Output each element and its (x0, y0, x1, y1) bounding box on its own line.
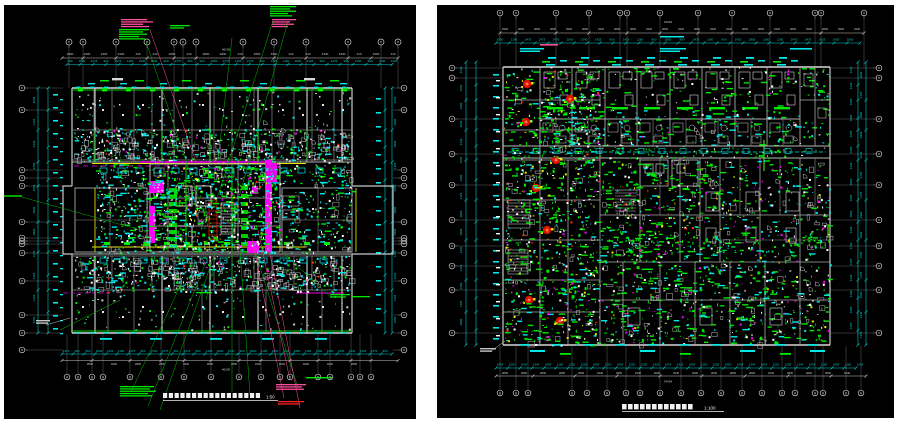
svg-text:2250: 2250 (394, 96, 397, 103)
svg-text:440: 440 (237, 52, 242, 56)
svg-text:1425: 1425 (307, 59, 314, 63)
svg-text:440: 440 (305, 52, 310, 56)
svg-text:1950: 1950 (725, 363, 732, 367)
svg-text:1425: 1425 (737, 363, 744, 367)
svg-text:1425: 1425 (497, 363, 504, 367)
svg-text:1160: 1160 (355, 59, 362, 63)
svg-text:2250: 2250 (460, 174, 463, 181)
svg-text:2250: 2250 (460, 282, 463, 289)
svg-text:3440: 3440 (673, 371, 680, 375)
svg-text:2800: 2800 (758, 27, 765, 31)
svg-text:2800: 2800 (825, 371, 832, 375)
svg-text:2800: 2800 (822, 27, 829, 31)
svg-text:3440: 3440 (646, 27, 653, 31)
svg-text:3440: 3440 (860, 151, 863, 158)
svg-text:1160: 1160 (845, 363, 852, 367)
svg-text:1160: 1160 (637, 38, 644, 42)
svg-text:2800: 2800 (860, 111, 863, 118)
svg-text:2800: 2800 (502, 371, 509, 375)
svg-text:960: 960 (609, 38, 614, 42)
svg-text:3440: 3440 (33, 96, 36, 103)
svg-text:3430: 3430 (255, 362, 262, 366)
svg-text:1950: 1950 (689, 363, 696, 367)
svg-text:4900: 4900 (271, 52, 278, 56)
svg-text:1425: 1425 (857, 363, 864, 367)
svg-text:3430: 3430 (183, 362, 190, 366)
svg-text:2800: 2800 (582, 27, 589, 31)
svg-text:1950: 1950 (521, 363, 528, 367)
svg-text:1425: 1425 (33, 118, 36, 125)
svg-text:960: 960 (85, 349, 90, 353)
svg-text:2800: 2800 (860, 131, 863, 138)
svg-text:440: 440 (356, 52, 361, 56)
svg-text:1540: 1540 (151, 59, 158, 63)
svg-text:3600: 3600 (711, 371, 718, 375)
svg-text:1425: 1425 (460, 300, 463, 307)
svg-text:1425: 1425 (860, 271, 863, 278)
svg-text:1425: 1425 (860, 91, 863, 98)
svg-text:2800: 2800 (460, 228, 463, 235)
svg-text:2250: 2250 (850, 130, 853, 137)
svg-text:440: 440 (152, 52, 157, 56)
svg-text:1425: 1425 (460, 192, 463, 199)
svg-text:1425: 1425 (394, 250, 397, 257)
svg-text:960: 960 (199, 59, 204, 63)
svg-text:960: 960 (67, 59, 72, 63)
svg-text:46200: 46200 (222, 48, 231, 52)
svg-text:2800: 2800 (254, 52, 261, 56)
svg-text:3440: 3440 (854, 27, 861, 31)
svg-text:2475: 2475 (331, 59, 338, 63)
svg-text:960: 960 (195, 349, 200, 353)
svg-text:2800: 2800 (394, 206, 397, 213)
svg-text:4900: 4900 (566, 27, 573, 31)
svg-text:1160: 1160 (707, 38, 714, 42)
svg-text:4900: 4900 (373, 52, 380, 56)
svg-text:2800: 2800 (806, 371, 813, 375)
svg-text:1425: 1425 (394, 294, 397, 301)
svg-text:3440: 3440 (460, 138, 463, 145)
svg-text:2800: 2800 (550, 27, 557, 31)
svg-text:3440: 3440 (850, 66, 853, 73)
svg-text:2250: 2250 (581, 363, 588, 367)
svg-text:2250: 2250 (605, 363, 612, 367)
svg-text:1950: 1950 (833, 363, 840, 367)
svg-text:2800: 2800 (559, 371, 566, 375)
svg-text:3440: 3440 (635, 371, 642, 375)
svg-text:960: 960 (239, 349, 244, 353)
svg-text:1425: 1425 (665, 363, 672, 367)
svg-text:3600: 3600 (692, 371, 699, 375)
svg-text:1425: 1425 (360, 349, 367, 353)
svg-text:2475: 2475 (791, 38, 798, 42)
svg-text:1540: 1540 (228, 349, 235, 353)
svg-text:2800: 2800 (847, 38, 854, 42)
svg-text:1340: 1340 (797, 363, 804, 367)
svg-text:1160: 1160 (557, 363, 564, 367)
svg-text:960: 960 (367, 59, 372, 63)
svg-text:440: 440 (288, 52, 293, 56)
svg-text:3440: 3440 (844, 371, 851, 375)
svg-text:1950: 1950 (545, 363, 552, 367)
svg-text:2800: 2800 (460, 210, 463, 217)
svg-text:4900: 4900 (303, 362, 310, 366)
svg-text:3440: 3440 (850, 290, 853, 297)
svg-text:2800: 2800 (850, 210, 853, 217)
svg-text:2475: 2475 (539, 38, 546, 42)
svg-text:2475: 2475 (175, 59, 182, 63)
svg-text:2475: 2475 (693, 38, 700, 42)
svg-text:2800: 2800 (850, 114, 853, 121)
svg-text:3440: 3440 (33, 140, 36, 147)
svg-text:3600: 3600 (654, 371, 661, 375)
svg-text:1950: 1950 (593, 363, 600, 367)
svg-text:3440: 3440 (850, 242, 853, 249)
svg-text:2475: 2475 (247, 59, 254, 63)
svg-text:1160: 1160 (511, 38, 518, 42)
svg-text:2800: 2800 (616, 371, 623, 375)
svg-text:2800: 2800 (33, 228, 36, 235)
svg-text:1160: 1160 (777, 38, 784, 42)
svg-text:2475: 2475 (91, 59, 98, 63)
svg-text:2250: 2250 (850, 98, 853, 105)
svg-text:4900: 4900 (502, 27, 509, 31)
svg-text:1425: 1425 (460, 264, 463, 271)
svg-text:2800: 2800 (665, 38, 672, 42)
svg-text:2250: 2250 (460, 84, 463, 91)
svg-text:3440: 3440 (678, 27, 685, 31)
svg-text:960: 960 (103, 59, 108, 63)
svg-text:2475: 2475 (129, 349, 136, 353)
svg-text:1425: 1425 (327, 349, 334, 353)
svg-text:3440: 3440 (460, 66, 463, 73)
svg-text:1540: 1540 (151, 349, 158, 353)
svg-text:1540: 1540 (349, 349, 356, 353)
svg-text:2250: 2250 (713, 363, 720, 367)
svg-text:3440: 3440 (460, 246, 463, 253)
svg-text:1425: 1425 (33, 294, 36, 301)
svg-text:2475: 2475 (63, 349, 70, 353)
svg-text:1425: 1425 (850, 322, 853, 329)
svg-text:2800: 2800 (860, 211, 863, 218)
svg-text:960: 960 (319, 59, 324, 63)
svg-text:2250: 2250 (33, 316, 36, 323)
svg-text:3430: 3430 (327, 362, 334, 366)
svg-text:960: 960 (721, 38, 726, 42)
svg-text:2800: 2800 (540, 371, 547, 375)
svg-text:3440: 3440 (850, 226, 853, 233)
svg-text:2250: 2250 (33, 184, 36, 191)
svg-text:1:50: 1:50 (266, 395, 275, 400)
svg-text:2250: 2250 (460, 102, 463, 109)
svg-text:2800: 2800 (578, 371, 585, 375)
svg-text:2800: 2800 (351, 362, 358, 366)
svg-text:2800: 2800 (749, 38, 756, 42)
svg-text:2800: 2800 (207, 362, 214, 366)
svg-text:4900: 4900 (84, 52, 91, 56)
svg-text:2475: 2475 (371, 349, 378, 353)
svg-text:2800: 2800 (521, 371, 528, 375)
svg-text:2250: 2250 (394, 316, 397, 323)
svg-text:440: 440 (135, 52, 140, 56)
svg-text:1160: 1160 (261, 349, 268, 353)
svg-text:2800: 2800 (211, 59, 218, 63)
svg-text:3430: 3430 (111, 362, 118, 366)
svg-text:1540: 1540 (96, 349, 103, 353)
svg-text:2475: 2475 (162, 349, 169, 353)
svg-text:2250: 2250 (394, 272, 397, 279)
svg-text:2250: 2250 (850, 306, 853, 313)
svg-text:1425: 1425 (391, 59, 398, 63)
svg-text:2800: 2800 (295, 59, 302, 63)
svg-text:2800: 2800 (860, 231, 863, 238)
svg-text:2800: 2800 (272, 349, 279, 353)
svg-text:3440: 3440 (860, 311, 863, 318)
svg-text:3430: 3430 (339, 52, 346, 56)
svg-text:2250: 2250 (773, 363, 780, 367)
svg-text:2800: 2800 (220, 52, 227, 56)
svg-text:2800: 2800 (203, 52, 210, 56)
svg-text:1540: 1540 (379, 59, 386, 63)
svg-text:2250: 2250 (33, 162, 36, 169)
svg-text:1425: 1425 (338, 349, 345, 353)
svg-text:2800: 2800 (294, 349, 301, 353)
svg-text:2250: 2250 (460, 156, 463, 163)
svg-text:1540: 1540 (139, 59, 146, 63)
svg-text:2250: 2250 (394, 184, 397, 191)
svg-text:34364: 34364 (664, 380, 673, 384)
svg-text:440: 440 (390, 52, 395, 56)
svg-text:1160: 1160 (763, 38, 770, 42)
svg-text:2800: 2800 (730, 371, 737, 375)
svg-text:1540: 1540 (581, 38, 588, 42)
svg-text:2250: 2250 (701, 363, 708, 367)
svg-text:1160: 1160 (283, 59, 290, 63)
svg-text:1425: 1425 (206, 349, 213, 353)
svg-text:440: 440 (186, 52, 191, 56)
svg-text:960: 960 (651, 38, 656, 42)
svg-text:3440: 3440 (710, 27, 717, 31)
svg-text:1160: 1160 (316, 349, 323, 353)
svg-text:1160: 1160 (305, 349, 312, 353)
svg-text:2800: 2800 (460, 318, 463, 325)
svg-text:1425: 1425 (394, 162, 397, 169)
svg-text:1160: 1160 (118, 349, 125, 353)
svg-text:1160: 1160 (821, 363, 828, 367)
svg-text:3440: 3440 (726, 27, 733, 31)
svg-text:2250: 2250 (860, 251, 863, 258)
svg-text:2800: 2800 (250, 349, 257, 353)
svg-text:2800: 2800 (860, 71, 863, 78)
svg-text:2800: 2800 (567, 38, 574, 42)
svg-text:1425: 1425 (653, 363, 660, 367)
svg-text:46200: 46200 (222, 368, 231, 372)
svg-text:2800: 2800 (662, 27, 669, 31)
svg-text:2800: 2800 (79, 59, 86, 63)
svg-text:1425: 1425 (595, 38, 602, 42)
svg-text:1425: 1425 (860, 331, 863, 338)
svg-text:3440: 3440 (597, 371, 604, 375)
svg-text:2800: 2800 (742, 27, 749, 31)
svg-text:1425: 1425 (860, 191, 863, 198)
svg-text:2250: 2250 (509, 363, 516, 367)
svg-text:2800: 2800 (33, 206, 36, 213)
svg-text:1425: 1425 (819, 38, 826, 42)
svg-text:1425: 1425 (33, 272, 36, 279)
svg-text:1425: 1425 (761, 363, 768, 367)
svg-text:960: 960 (382, 349, 387, 353)
svg-text:2800: 2800 (694, 27, 701, 31)
svg-text:960: 960 (343, 59, 348, 63)
svg-text:3430: 3430 (322, 52, 329, 56)
svg-text:1950: 1950 (617, 363, 624, 367)
svg-text:1425: 1425 (677, 363, 684, 367)
svg-text:960: 960 (187, 59, 192, 63)
svg-text:2475: 2475 (525, 38, 532, 42)
svg-text:2800: 2800 (850, 178, 853, 185)
svg-text:2800: 2800 (394, 140, 397, 147)
svg-text:2800: 2800 (394, 118, 397, 125)
svg-text:960: 960 (679, 38, 684, 42)
svg-text:4900: 4900 (279, 362, 286, 366)
svg-text:2250: 2250 (860, 171, 863, 178)
svg-text:2250: 2250 (569, 363, 576, 367)
svg-text:1340: 1340 (533, 363, 540, 367)
svg-text:2250: 2250 (629, 363, 636, 367)
svg-text:3440: 3440 (774, 27, 781, 31)
svg-text:2800: 2800 (87, 362, 94, 366)
svg-text:3430: 3430 (101, 52, 108, 56)
svg-text:2250: 2250 (460, 120, 463, 127)
svg-text:1425: 1425 (107, 349, 114, 353)
svg-text:1425: 1425 (833, 38, 840, 42)
svg-text:2475: 2475 (223, 59, 230, 63)
svg-text:34364: 34364 (664, 20, 673, 24)
svg-text:3440: 3440 (850, 162, 853, 169)
svg-text:2250: 2250 (850, 146, 853, 153)
svg-text:4900: 4900 (838, 27, 845, 31)
svg-text:2800: 2800 (518, 27, 525, 31)
svg-text:960: 960 (173, 349, 178, 353)
svg-text:960: 960 (163, 59, 168, 63)
svg-text:1425: 1425 (235, 59, 242, 63)
svg-text:2250: 2250 (785, 363, 792, 367)
svg-text:2475: 2475 (553, 38, 560, 42)
svg-text:2800: 2800 (135, 362, 142, 366)
svg-text:2475: 2475 (115, 59, 122, 63)
svg-text:2250: 2250 (860, 291, 863, 298)
svg-text:1425: 1425 (33, 250, 36, 257)
svg-text:1425: 1425 (735, 38, 742, 42)
svg-text:1340: 1340 (749, 363, 756, 367)
svg-text:2800: 2800 (630, 27, 637, 31)
svg-text:3440: 3440 (850, 274, 853, 281)
svg-text:2800: 2800 (614, 27, 621, 31)
svg-text:2475: 2475 (184, 349, 191, 353)
svg-text:2475: 2475 (805, 38, 812, 42)
svg-text:2800: 2800 (790, 27, 797, 31)
svg-text:1425: 1425 (850, 258, 853, 265)
svg-text:2800: 2800 (749, 371, 756, 375)
svg-text:2800: 2800 (534, 27, 541, 31)
svg-text:2800: 2800 (497, 38, 504, 42)
svg-text:960: 960 (140, 349, 145, 353)
svg-text:960: 960 (74, 349, 79, 353)
svg-text:4900: 4900 (806, 27, 813, 31)
svg-text:3430: 3430 (118, 52, 125, 56)
svg-text:1425: 1425 (623, 38, 630, 42)
svg-text:3440: 3440 (598, 27, 605, 31)
svg-text:2800: 2800 (169, 52, 176, 56)
svg-text:1425: 1425 (809, 363, 816, 367)
svg-text:3440: 3440 (850, 82, 853, 89)
svg-text:3440: 3440 (768, 371, 775, 375)
svg-text:2800: 2800 (787, 371, 794, 375)
svg-text:2800: 2800 (394, 228, 397, 235)
svg-text:2800: 2800 (217, 349, 224, 353)
svg-text:2250: 2250 (850, 194, 853, 201)
svg-text:1425: 1425 (127, 59, 134, 63)
svg-text:2800: 2800 (67, 52, 74, 56)
svg-text:2250: 2250 (641, 363, 648, 367)
